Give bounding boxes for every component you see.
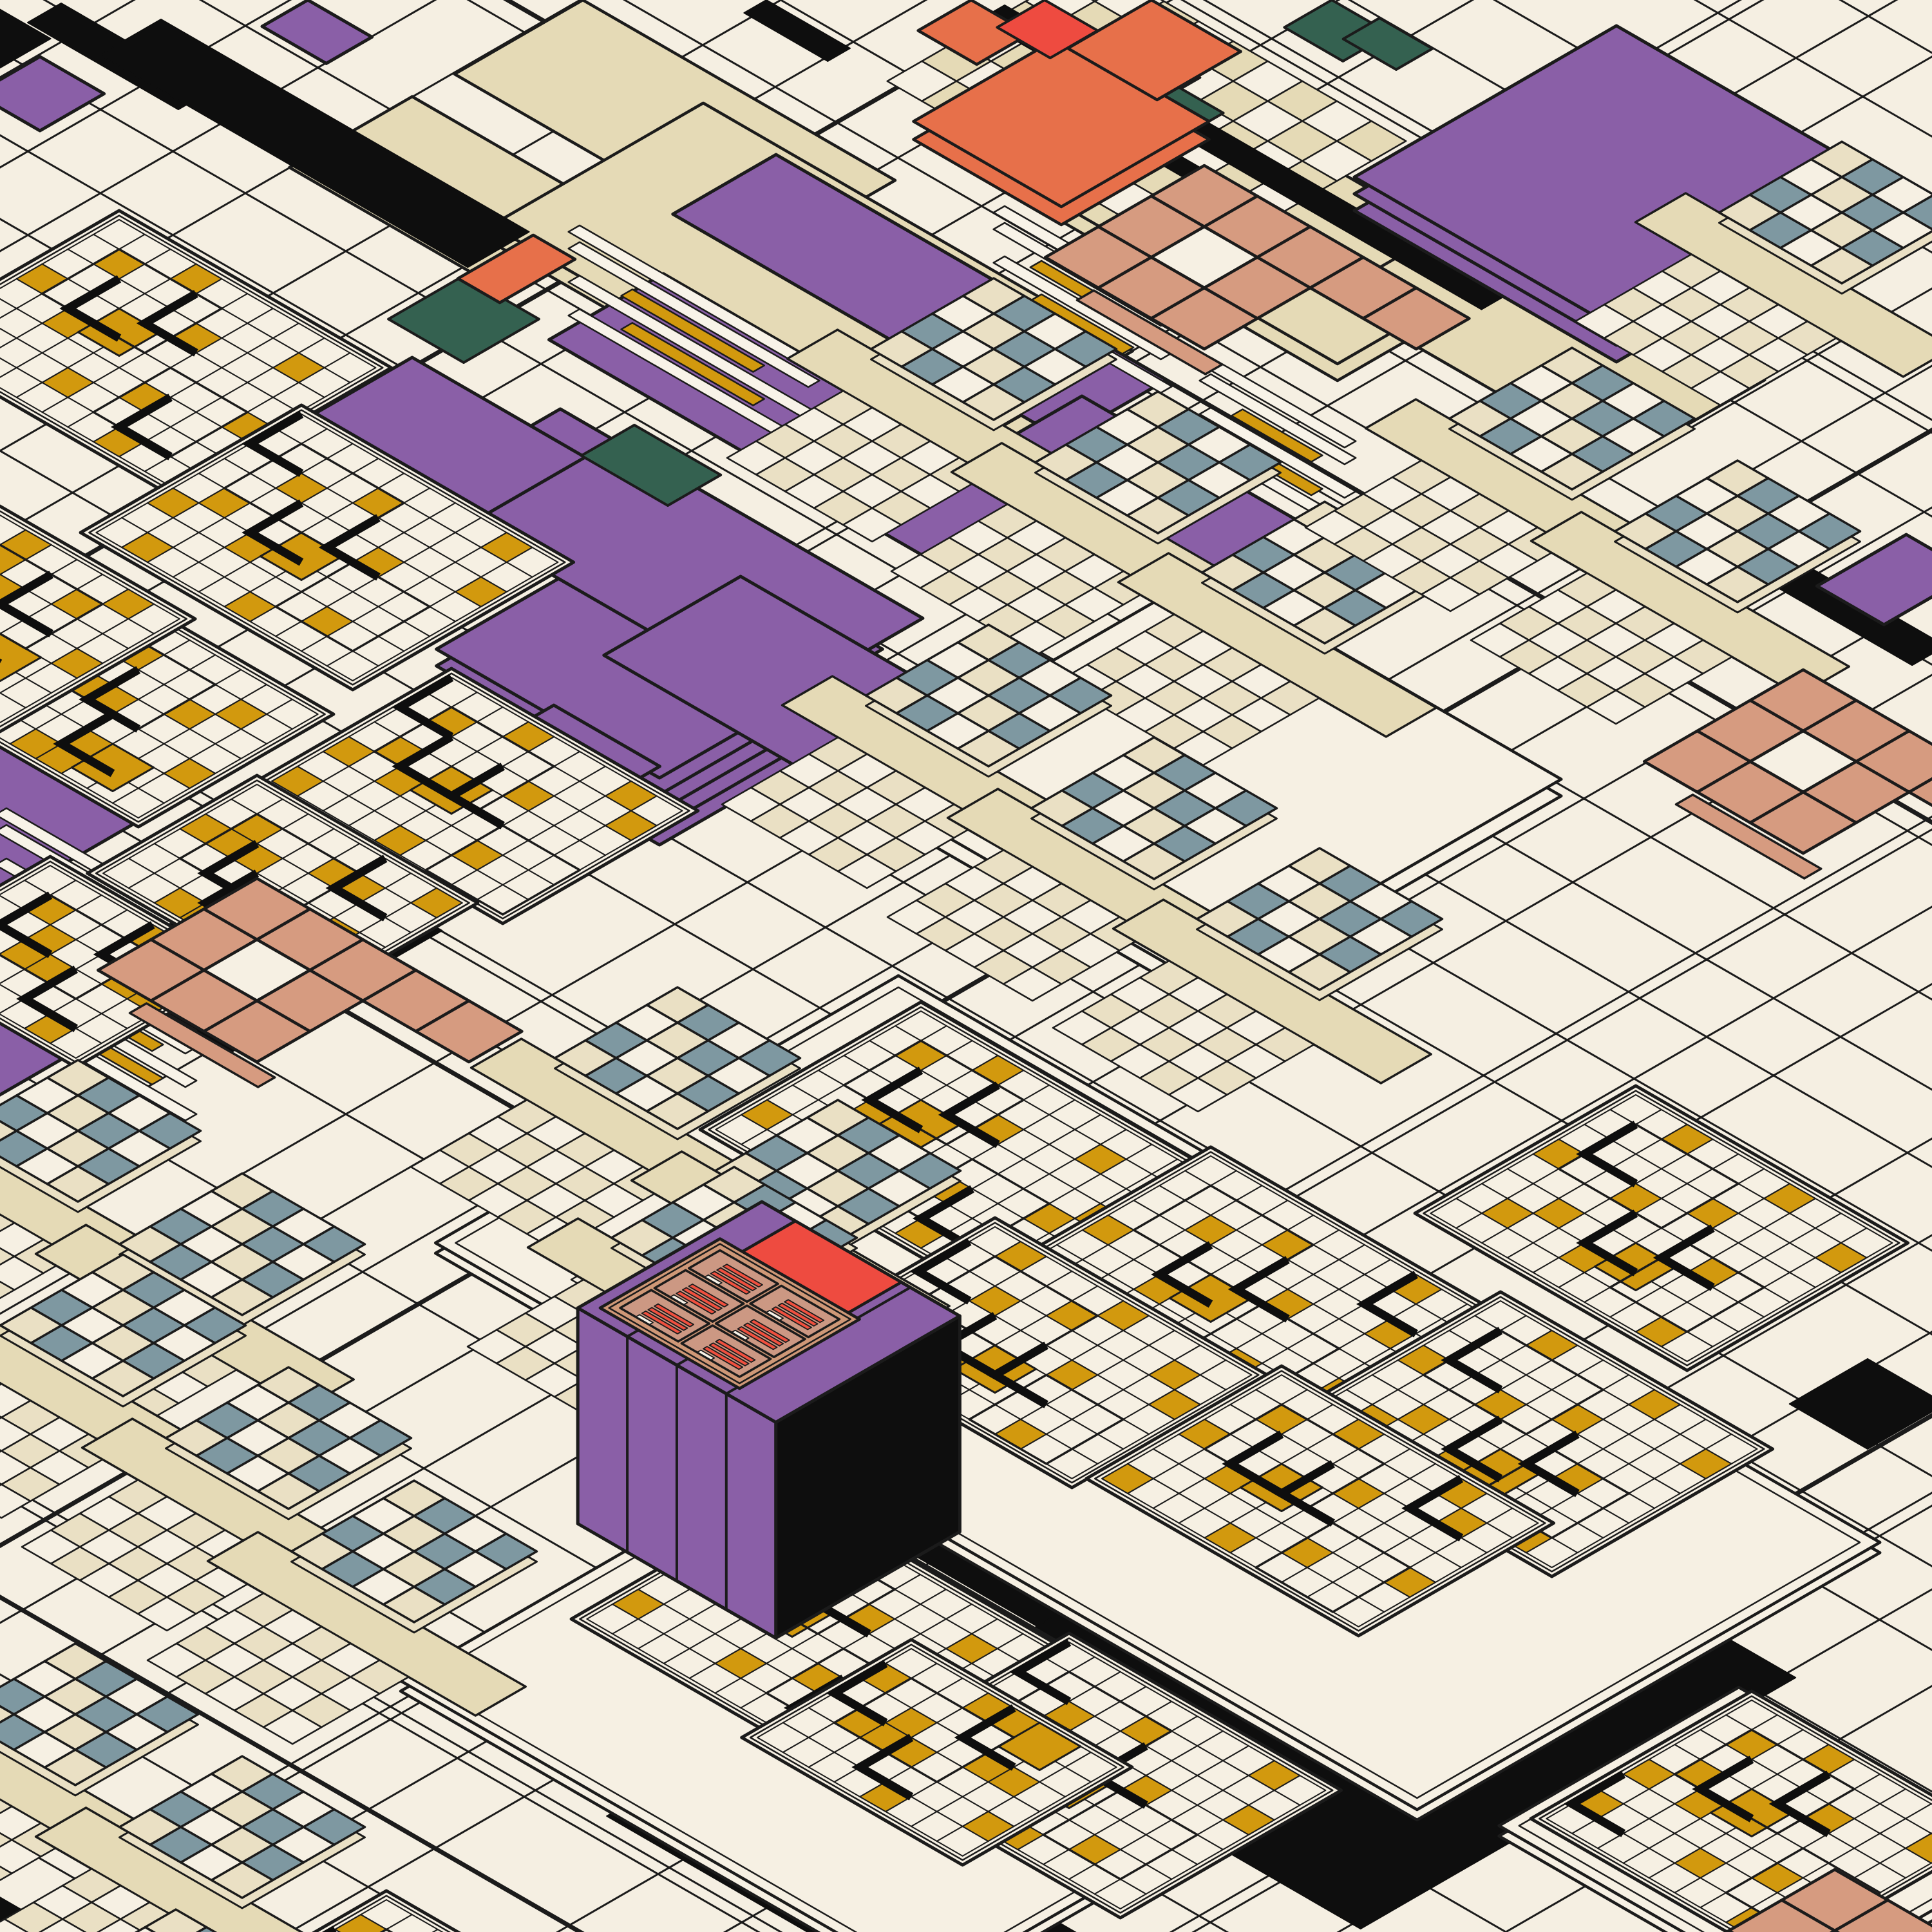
- artwork-canvas: [0, 0, 1932, 1932]
- isometric-generative-artwork: [0, 0, 1932, 1932]
